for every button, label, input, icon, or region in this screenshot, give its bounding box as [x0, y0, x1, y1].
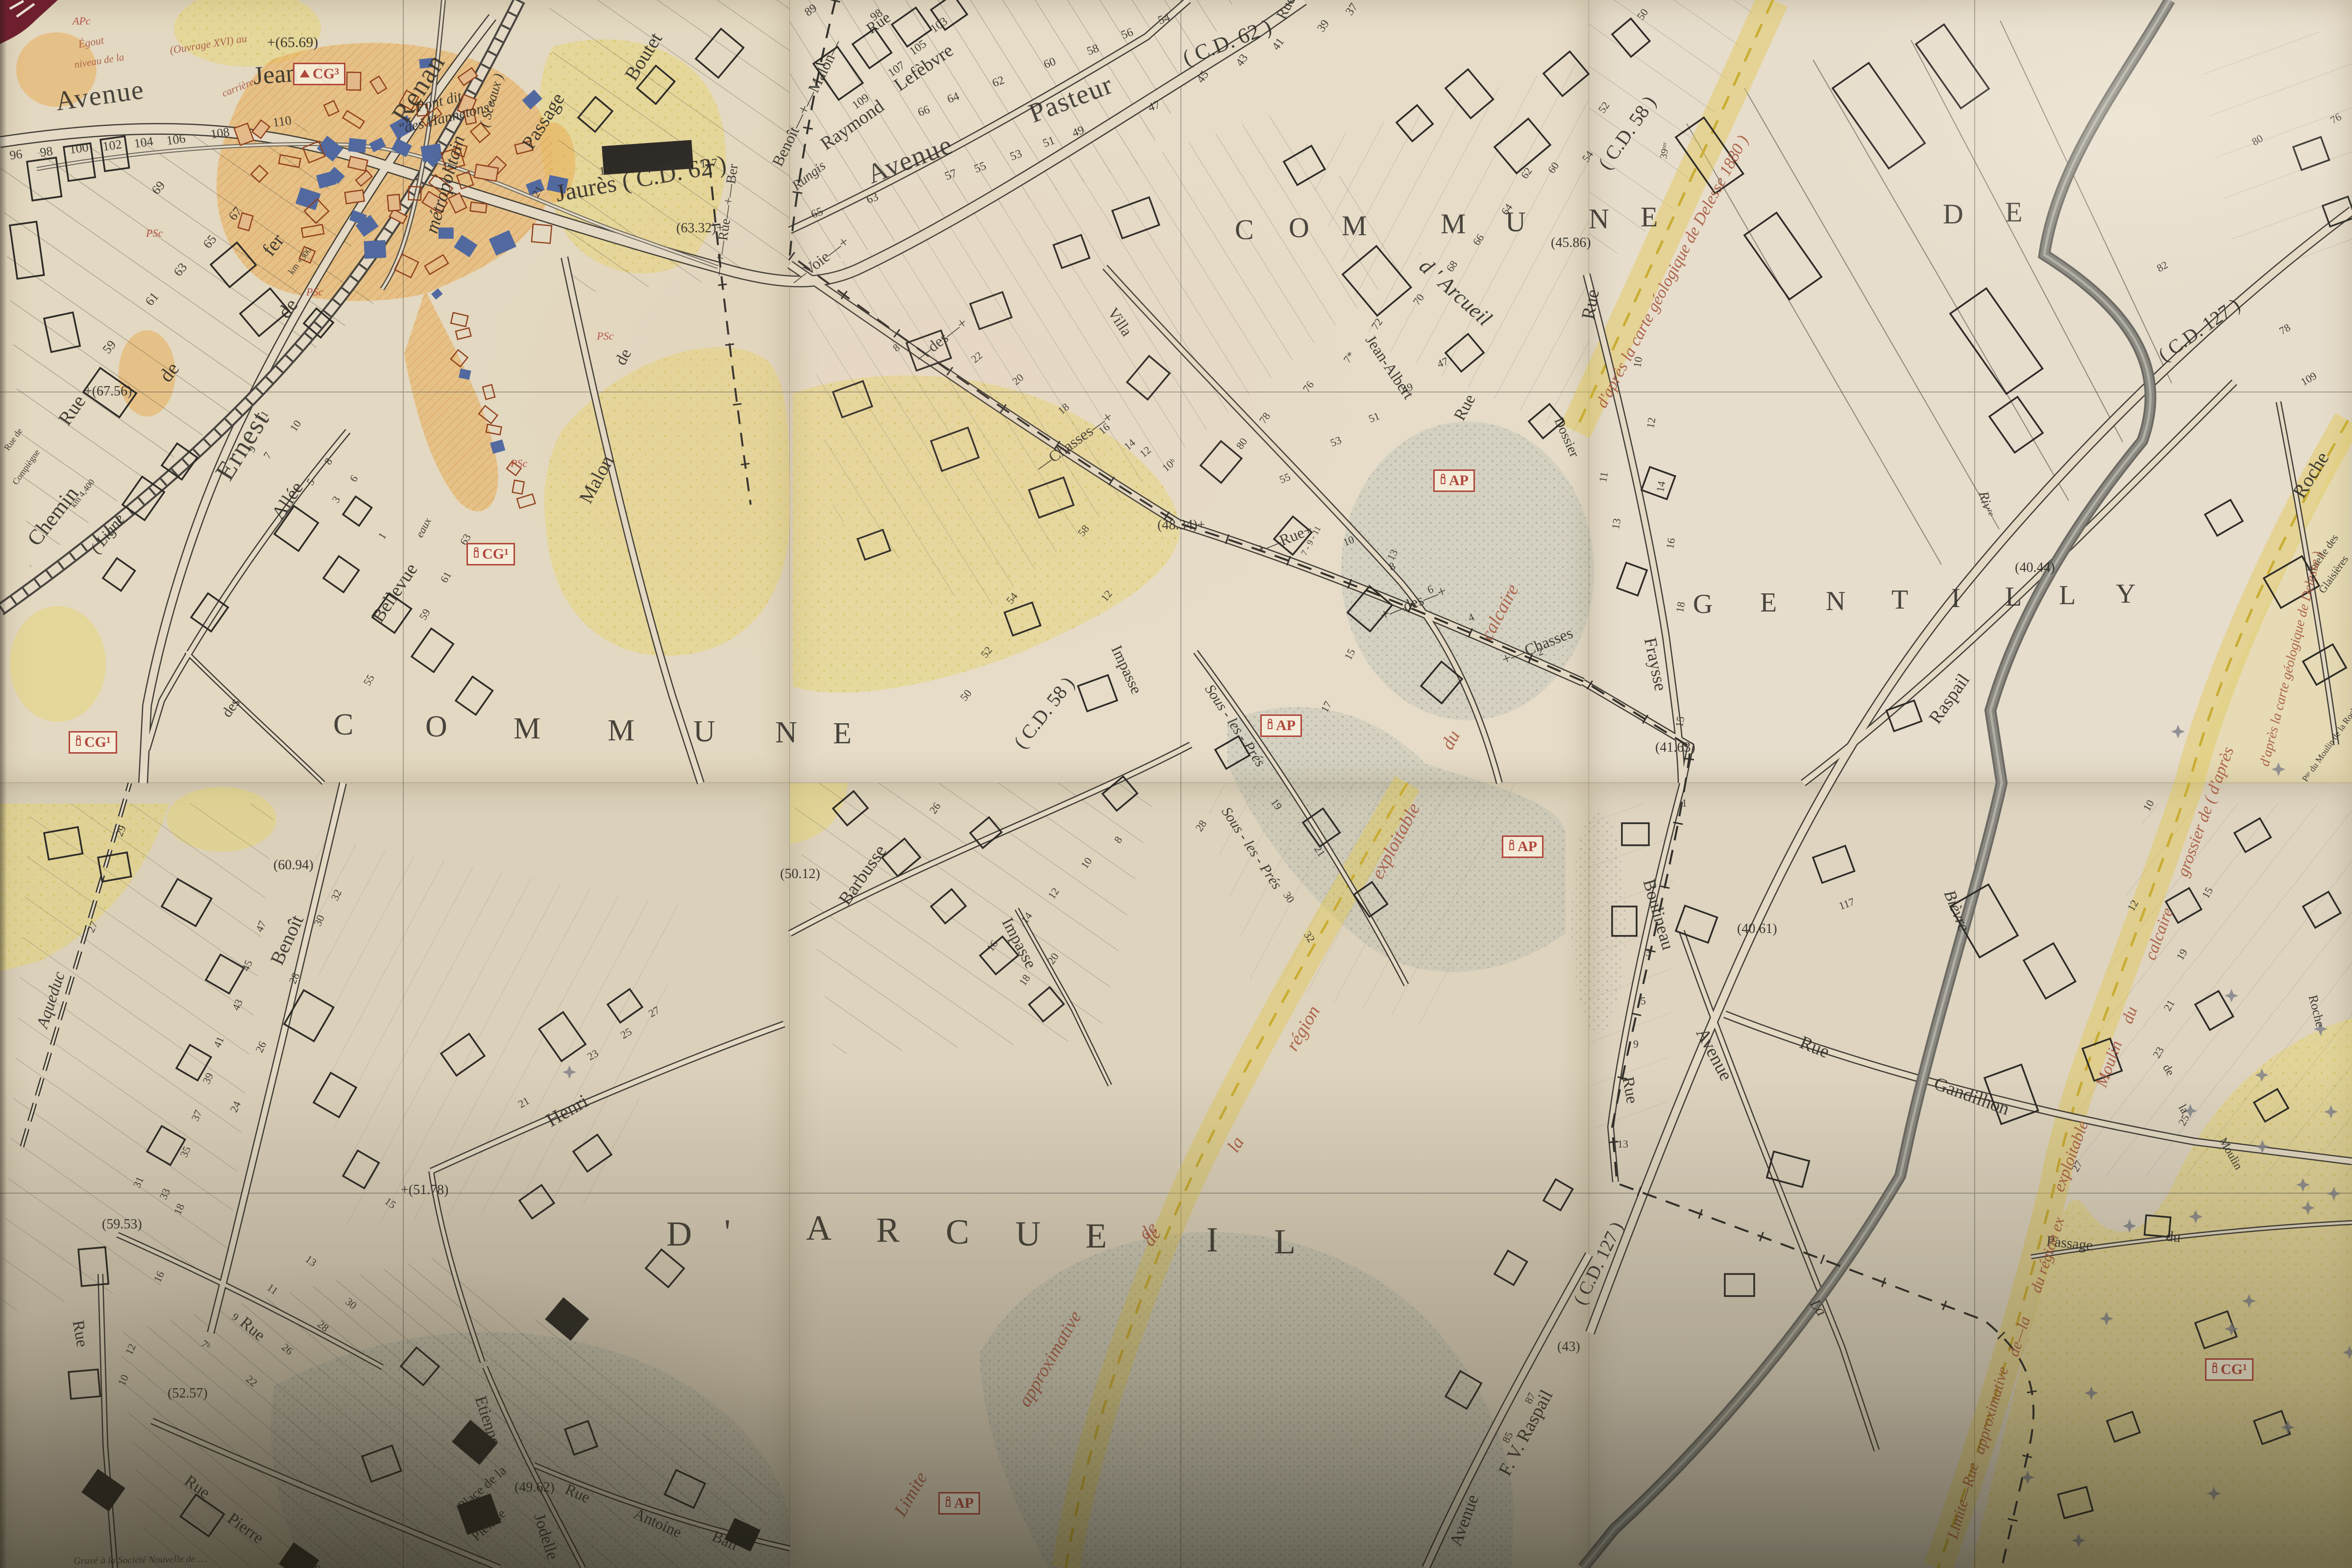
street-label: 106 [166, 132, 186, 147]
street-label: 100 [69, 141, 89, 156]
street-label: 80 [2250, 133, 2265, 147]
street-label: 47 [254, 919, 268, 933]
street-label: 98 [39, 145, 53, 159]
urn-icon [75, 734, 82, 751]
street-label: PSc [146, 228, 163, 239]
street-label: 60 [1042, 55, 1057, 71]
street-label: Sous - les - Prés [1202, 682, 1268, 769]
street-label: la [1224, 1133, 1248, 1155]
street-label: 54 [1156, 11, 1172, 26]
elevation-label: (52.57) [168, 1387, 208, 1400]
street-label: des [220, 695, 243, 720]
street-label: eaux [414, 516, 433, 539]
street-label: grossier de ( d'après [2175, 745, 2237, 879]
street-label: 22 [244, 1373, 259, 1389]
street-label: 111 [599, 165, 616, 177]
street-label: 49 [1071, 124, 1086, 139]
commune-letter: E [1760, 589, 1778, 616]
commune-letter: M [514, 713, 541, 744]
street-label: Impasse [1109, 643, 1145, 696]
street-label: 13 [1617, 1139, 1628, 1150]
street-label: 58 [1076, 523, 1091, 539]
street-label: 39 [1315, 18, 1331, 34]
street-label: 69 [149, 179, 168, 197]
street-label: km +300 [287, 245, 313, 276]
street-label: 19 [1269, 797, 1284, 812]
street-label: 66 [916, 103, 931, 119]
commune-letter: O [425, 711, 448, 742]
street-label: —Voie—+ [788, 233, 852, 288]
street-label: carrière [220, 77, 255, 99]
marker-label: AP [1276, 717, 1296, 734]
street-label: 7* [1342, 350, 1357, 365]
street-label: 115 [665, 160, 684, 172]
street-label: Compiègne [11, 448, 41, 486]
street-label: 53 [1329, 435, 1343, 449]
street-label: 41 [1270, 36, 1286, 52]
street-label: 9 [230, 1311, 241, 1323]
street-label: 13 [303, 1253, 318, 1269]
commune-letter: N [1589, 205, 1610, 233]
street-label: 63 [865, 191, 880, 206]
street-label: Rue [1451, 392, 1479, 423]
street-label: exploitable [1368, 800, 1423, 882]
commune-letter: D [666, 1216, 693, 1251]
street-label: 113 [633, 162, 651, 175]
street-label: 14 [1655, 480, 1667, 492]
street-label: niveau de la [73, 52, 125, 70]
commune-letter: Avenue [863, 131, 956, 189]
quarry-marker-CG: CG¹ [466, 543, 515, 565]
quarry-marker-AP: AP [1260, 714, 1302, 737]
street-label: Pierre [224, 1510, 267, 1547]
street-label: 62 [1519, 166, 1534, 181]
street-label: 8 [1388, 561, 1396, 573]
street-label: ( C.D. 127 ) [2155, 295, 2243, 365]
elevation-label: (40.44) [2015, 561, 2055, 575]
street-label: 51 [1041, 134, 1056, 149]
street-label: Rue [1619, 1076, 1641, 1105]
elevation-label: (41.63) [1655, 741, 1695, 755]
street-label: 47 [1147, 98, 1162, 114]
street-label: 1 [376, 531, 388, 541]
street-label: calcaire [2142, 906, 2177, 962]
street-label: 14 [1019, 910, 1034, 926]
street-label: de [2160, 1062, 2176, 1078]
elevation-label: (50.12) [780, 867, 820, 881]
commune-letter: M [1342, 212, 1368, 240]
street-label: 109 [2299, 370, 2319, 388]
quarry-marker-AP: AP [1433, 469, 1475, 492]
street-label: Bellevue [368, 560, 421, 625]
commune-letter: E [1085, 1218, 1108, 1253]
street-label: 4 [1467, 612, 1475, 624]
street-label: Place de la [456, 1464, 509, 1514]
street-label: 13 [1385, 548, 1400, 563]
street-label: Rungis [790, 159, 829, 193]
street-label: Raspail [1926, 671, 1973, 727]
elevation-label: (45.86) [1551, 236, 1591, 250]
street-label: 29 [114, 824, 128, 838]
street-label: Rue [1797, 1033, 1832, 1061]
street-label: 28 [287, 971, 301, 985]
street-label: Passage [518, 90, 568, 153]
street-label: Villa [1105, 305, 1135, 339]
commune-letter: M [1441, 210, 1467, 238]
street-label: Rivʳᵉ [1976, 490, 1996, 517]
street-label: 18 [172, 1202, 186, 1216]
elevation-label: (60.94) [273, 858, 314, 872]
street-label: Pléiade [469, 1507, 509, 1544]
street-label: 10 [2141, 798, 2156, 813]
street-label: 57 [943, 167, 958, 182]
street-label: 15 [383, 1196, 398, 1211]
marker-label: CG¹ [482, 546, 509, 563]
street-label: +—des—+ [1378, 583, 1448, 623]
street-label: 56 [1120, 26, 1135, 41]
street-label: 13 [1610, 517, 1622, 530]
street-label: PSc [597, 331, 613, 342]
street-label: 60 [1546, 160, 1561, 175]
street-label: du région ex [2028, 1215, 2067, 1295]
street-label: 12 [1645, 416, 1657, 429]
quarry-marker-AP: AP [938, 1492, 980, 1515]
street-label: Rue [563, 1481, 592, 1505]
street-label: (Ouvrage XVI) au [169, 33, 247, 56]
street-label: Boutet [621, 29, 665, 84]
street-label: Malon [576, 452, 617, 507]
street-label: 32 [329, 888, 343, 902]
urn-icon [2211, 1361, 2218, 1378]
commune-letter: M [608, 715, 636, 746]
street-label: 10 [1632, 356, 1644, 368]
commune-letter: R [876, 1212, 901, 1248]
elevation-label: +(65.69) [267, 35, 318, 50]
street-label: 117 [700, 157, 718, 170]
street-label: 59 [417, 607, 432, 622]
street-label: de—la [2005, 1315, 2033, 1358]
street-label: 20 [1046, 951, 1061, 966]
street-label: 30 [1281, 890, 1297, 905]
street-label: 11 [265, 1282, 280, 1297]
street-label: 30 [312, 913, 326, 928]
commune-letter: L [1274, 1224, 1297, 1259]
street-label: 104 [133, 135, 154, 150]
street-label: Limite—Rue [1944, 1461, 1981, 1541]
street-label: 82 [2155, 259, 2170, 274]
street-label: 78 [1257, 411, 1273, 426]
street-label: 11 [1597, 471, 1610, 483]
urn-icon [1267, 717, 1274, 734]
elevation-label: (59.53) [102, 1218, 142, 1231]
street-label: Rue [1579, 288, 1602, 321]
street-label: Ronsard [288, 1543, 342, 1568]
street-label: Dossier [1551, 416, 1581, 460]
street-label: Rue [237, 1314, 268, 1344]
street-label: 37 [190, 1108, 204, 1123]
commune-letter: Y [2116, 580, 2136, 608]
map-photo: AvenueErnestRenanJeanJaurès ( C.D. 62 )m… [0, 0, 2352, 1568]
street-label: 9 [1633, 1039, 1639, 1050]
street-label: 1 [1682, 798, 1687, 808]
street-label: Rue [1274, 0, 1298, 22]
street-label: 65 [201, 233, 219, 251]
quarry-marker-CG: CG¹ [69, 731, 117, 754]
street-label: Rue [181, 1472, 213, 1502]
marker-label: CG¹ [84, 734, 111, 751]
street-label: 37 [1344, 1, 1360, 17]
urn-icon [473, 546, 480, 563]
street-label: 12 [1099, 588, 1114, 604]
commune-letter: E [833, 718, 853, 749]
elevation-label: (49.62) [514, 1481, 555, 1494]
street-label: ( Ligne [87, 511, 127, 556]
street-label: 65 [809, 205, 825, 220]
street-label: 23 [586, 1048, 600, 1062]
street-label: 55 [973, 160, 988, 175]
street-label: Jean [252, 61, 299, 89]
street-label: 59 [100, 338, 119, 356]
street-label: Moulin [2093, 1039, 2126, 1090]
street-label: Roche [2289, 448, 2332, 501]
street-label: 62 [991, 74, 1006, 89]
street-label: 19 [2175, 947, 2189, 962]
street-label: 78 [2278, 322, 2292, 337]
street-label: 67 [226, 205, 245, 223]
commune-letter: L [2059, 582, 2077, 609]
urn-icon [1440, 472, 1446, 489]
street-label: 18 [1674, 601, 1687, 613]
elevation-label: (40.61) [1737, 922, 1777, 936]
street-label: d'après la carte géologique de Delesse ) [2258, 550, 2325, 768]
commune-letter: I [1206, 1222, 1219, 1257]
street-label: 52 [1596, 100, 1612, 115]
street-label: 12 [1138, 444, 1153, 460]
commune-letter: T [1891, 586, 1909, 613]
marker-label: CG¹ [2221, 1361, 2247, 1378]
street-label: 3 [1645, 947, 1651, 958]
commune-letter: N [1826, 588, 1846, 615]
street-label: Aqueduc [34, 970, 68, 1030]
engraver-caption: Gravé à la Société Nouvelle de … [73, 1554, 206, 1566]
commune-letter: I [1951, 585, 1961, 612]
street-label: Impasse [999, 915, 1039, 971]
street-label: Rue de [2, 427, 24, 452]
elevation-label: (48.34)+ [1157, 518, 1205, 532]
street-label: 28 [316, 1319, 331, 1334]
street-label: 12 [123, 1342, 138, 1356]
street-label: 30 [343, 1296, 359, 1311]
street-label: —Chasses—+ [1033, 408, 1116, 474]
commune-letter: E [1641, 203, 1659, 231]
commune-letter: O [1289, 214, 1310, 242]
street-label: fer [259, 230, 288, 260]
street-label: 66 [1471, 232, 1486, 247]
quarry-marker-CG: CG¹ [2205, 1358, 2254, 1381]
street-label: 55 [362, 673, 376, 687]
street-label: Bièvre [1940, 888, 1972, 934]
street-label: 43 [1234, 52, 1250, 68]
street-label: Avenue [1446, 1492, 1481, 1548]
street-label: Égout [77, 35, 105, 50]
street-label: Limite [891, 1469, 931, 1519]
street-label: 51 [1367, 411, 1381, 425]
street-label: 25 [619, 1026, 634, 1041]
street-label: 28 [1194, 818, 1209, 833]
street-label: Pᵍᵉ du Moulin de la Roche [2301, 702, 2352, 784]
commune-letter: U [1015, 1216, 1042, 1251]
street-label: 15 [1674, 715, 1686, 728]
commune-letter: N [775, 717, 798, 748]
street-label: 50 [958, 688, 974, 703]
triangle-icon [299, 66, 310, 82]
street-label: Barbusse [835, 842, 890, 908]
street-label: 8 [1112, 834, 1124, 845]
street-label: 50 [1635, 7, 1650, 22]
commune-letter: G [1693, 590, 1714, 618]
street-label: 103 [929, 15, 950, 35]
elevation-label: (63.32)+ [676, 221, 724, 235]
street-label: 7ᵇ [199, 1338, 212, 1352]
street-label: 3 [330, 494, 342, 505]
street-label: 24 [228, 1100, 243, 1114]
street-label: 21 [530, 184, 545, 199]
street-label: Baïf [710, 1528, 741, 1553]
street-label: Gandilhon [1932, 1074, 2012, 1119]
street-label: 8 [891, 342, 902, 354]
street-label: 39ᵗᵉʳ [1659, 142, 1671, 159]
marker-label: AP [1518, 838, 1537, 855]
street-label: Jodelle [531, 1512, 561, 1562]
street-label: 21 [516, 1095, 531, 1110]
street-label: 63 [171, 261, 190, 279]
street-label: 64 [946, 90, 961, 105]
street-label: 15 [2200, 885, 2215, 900]
marker-label: AP [954, 1495, 974, 1512]
street-label: 26 [254, 1040, 268, 1054]
street-label: 8 [322, 456, 334, 466]
street-label: approximative [1015, 1308, 1085, 1410]
street-label: —+—Rue—+—Ber [711, 163, 741, 276]
street-label: métropolitain [422, 133, 468, 235]
street-label: 16 [1665, 537, 1677, 549]
commune-letter: Pasteur [1025, 71, 1117, 127]
street-label: du [2165, 1229, 2181, 1245]
street-label: 43 [230, 998, 245, 1012]
street-label: Benoît [267, 912, 307, 968]
street-label: 110 [272, 114, 292, 129]
street-label: Henri [543, 1091, 591, 1130]
street-label: PSc [306, 287, 323, 297]
street-label: 45 [240, 958, 254, 973]
street-label: 21 [1312, 844, 1327, 859]
marker-label: CG³ [313, 66, 339, 82]
street-label: 52 [979, 645, 994, 660]
elevation-label: +(67.56) [84, 385, 132, 398]
street-label: 12 [2126, 898, 2140, 913]
street-label: 80 [1234, 436, 1249, 451]
marker-label: AP [1449, 472, 1469, 489]
street-label: 70 [1411, 292, 1426, 307]
street-label: région [1283, 1003, 1323, 1054]
street-label: 21 [2162, 998, 2177, 1013]
street-label: 26 [928, 801, 943, 816]
street-label: 7 [262, 450, 273, 461]
commune-letter: C [333, 710, 354, 740]
street-label: 76 [1301, 379, 1316, 394]
street-label: 17 [1319, 700, 1334, 714]
street-label: 61 [143, 290, 161, 308]
street-label: 22 [969, 350, 984, 365]
street-label: 54 [1004, 591, 1020, 606]
street-label: de [612, 346, 635, 368]
urn-icon [945, 1495, 952, 1512]
street-label: 96 [9, 147, 23, 162]
commune-letter: C [1235, 216, 1255, 244]
commune-letter: U [693, 716, 716, 747]
street-label: 31 [131, 1175, 146, 1189]
street-label: 47 [1436, 356, 1450, 370]
street-label: exploitable [2051, 1119, 2092, 1194]
street-label: —des—+ [912, 314, 970, 364]
street-label: 35 [178, 1145, 193, 1159]
street-label: 33 [158, 1187, 172, 1201]
street-label: 54 [1580, 149, 1595, 164]
street-label: 14 [1122, 437, 1137, 452]
street-label: Antoine [632, 1505, 684, 1540]
street-label: APc [73, 16, 91, 26]
street-label: 23 [2151, 1045, 2166, 1060]
street-label: 61 [439, 570, 453, 585]
street-label: 6 [348, 473, 360, 484]
street-label: Roche [2306, 994, 2327, 1029]
commune-letter: Avenue [54, 76, 146, 116]
street-label: 27 [85, 920, 99, 934]
street-label: Allée [269, 479, 307, 522]
street-label: Etienne [472, 1394, 503, 1447]
commune-letter: L [2005, 583, 2023, 611]
street-label: calcaire [1477, 581, 1522, 643]
street-label: Moulin [2217, 1136, 2244, 1172]
street-label: 55 [1278, 471, 1292, 486]
street-label: 5 [305, 477, 317, 487]
street-label: 10 [288, 418, 303, 434]
street-label: 5 [1641, 996, 1646, 1006]
street-label: 76 [2328, 111, 2343, 126]
street-label: 26 [280, 1342, 295, 1357]
street-label: ( C.D. 127 ) [1570, 1219, 1626, 1308]
street-label: 102 [102, 138, 122, 153]
street-label: 53 [1008, 147, 1024, 163]
elevation-label: +(51.78) [401, 1183, 448, 1197]
street-label: 18 [1056, 401, 1071, 416]
map-labels-layer: AvenueErnestRenanJeanJaurès ( C.D. 62 )m… [0, 0, 2352, 1568]
street-label: PSc [511, 458, 527, 469]
street-label: du [1438, 727, 1463, 752]
street-label: 10 [116, 1373, 130, 1387]
street-label: Sous - les - Prés [1219, 805, 1284, 892]
commune-letter: D [1943, 200, 1964, 228]
street-label: Rue [70, 1319, 91, 1348]
street-label: 10ᵇ [1160, 456, 1178, 473]
street-label: 41 [212, 1035, 226, 1049]
quarry-marker-AP: AP [1502, 835, 1543, 858]
street-label: de [274, 295, 301, 321]
street-label: 45 [1195, 69, 1211, 85]
street-label: Boulineau [1640, 877, 1677, 952]
street-label: 10 [1079, 856, 1094, 871]
street-label: ( C.D. 58 ) [1010, 673, 1078, 752]
